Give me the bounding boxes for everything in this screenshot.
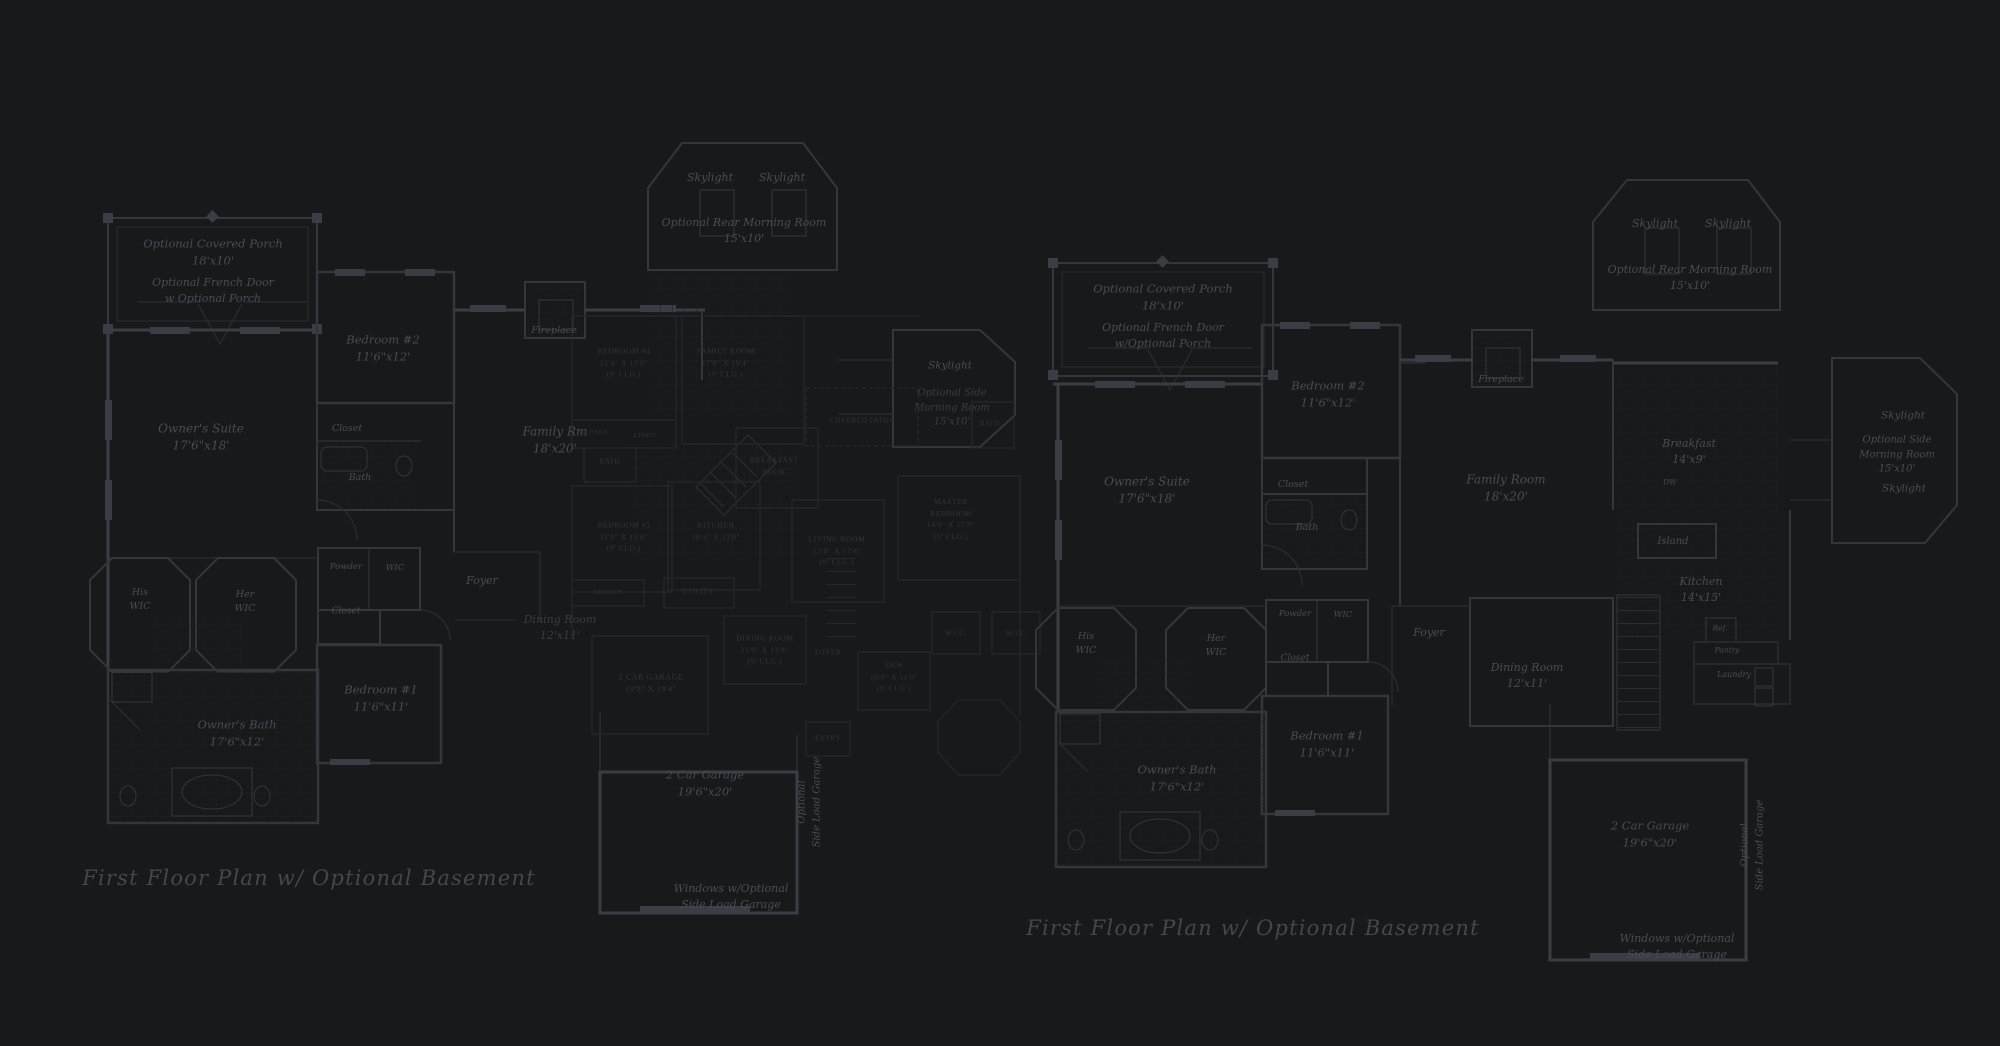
kitchen-r-label: Kitchen14'x15'	[1680, 574, 1723, 606]
u-wic2-label: W.I.C.	[1006, 629, 1028, 640]
closet-bedroom2-r-label: Closet	[1278, 478, 1308, 492]
skylight-rear-r1-label: Skylight	[1632, 216, 1678, 232]
powder-r-label: Powder	[1279, 608, 1311, 620]
u-bath2-label: BATH	[980, 419, 1001, 430]
u-dining-room-label: DINING ROOM11'0" X 13'8"(9' CLG.)	[736, 633, 794, 668]
u-wic1-label: W.I.C.	[945, 629, 967, 640]
foyer-label: Foyer	[466, 573, 498, 589]
u-linen-label: LINEN	[634, 431, 657, 441]
side-morning-room-r-label: Optional SideMorning Room15'x10'	[1859, 433, 1935, 477]
wic-r-label: WIC	[1334, 609, 1353, 621]
caption-r-label: First Floor Plan w/ Optional Basement	[1026, 913, 1480, 943]
garage-r-label: 2 Car Garage19'6"x20'	[1611, 817, 1689, 850]
side-load-garage-r-label: OptionalSide Load Garage	[1739, 800, 1768, 891]
u-family-room-label: FAMILY ROOM17'8" X 19'4"(9' CLG.)	[697, 346, 755, 381]
opt-covered-porch-r-label: Optional Covered Porch18'x10'	[1093, 280, 1233, 313]
island-r-label: Island	[1657, 535, 1688, 550]
opt-french-door-label: Optional French Doorw Optional Porch	[152, 275, 274, 307]
opt-french-door-r-label: Optional French Doorw/Optional Porch	[1102, 320, 1224, 352]
dw-r-label: DW	[1663, 478, 1677, 489]
owners-suite-label: Owner's Suite17'6"x18'	[158, 421, 244, 456]
u-breakfast-nook-label: BREAKFASTNOOK	[750, 454, 799, 477]
dining-room-label: Dining Room12'x11'	[524, 612, 597, 644]
caption-label: First Floor Plan w/ Optional Basement	[82, 863, 536, 893]
opt-covered-porch-label: Optional Covered Porch18'x10'	[143, 235, 283, 268]
u-closet1-label: CLOSET	[580, 428, 608, 438]
skylight-side-r2-label: Skylight	[1882, 481, 1926, 496]
u-bath1-label: BATH	[600, 457, 621, 468]
breakfast-r-label: Breakfast14'x9'	[1662, 436, 1716, 468]
skylight-side-r1-label: Skylight	[1881, 408, 1925, 423]
family-room-r-label: Family Room18'x20'	[1466, 472, 1545, 507]
u-bedroom4-label: BEDROOM #412'4" X 13'0"(9' CLG.)	[598, 346, 651, 381]
bedroom1-r-label: Bedroom #111'6"x11'	[1290, 727, 1363, 760]
u-master-bedroom-label: MASTERBEDROOM14'0" X 17'8"(9' CLG.)	[927, 496, 975, 543]
his-wic-label: HisWIC	[130, 586, 151, 614]
bedroom2-r-label: Bedroom #211'6"x12'	[1291, 377, 1364, 410]
family-rm-label: Family Rm18'x20'	[523, 424, 588, 459]
side-load-garage-label: OptionalSide Load Garage	[796, 757, 825, 848]
foyer-r-label: Foyer	[1413, 625, 1445, 641]
u-closet2-label: CLOSET	[594, 588, 622, 598]
side-morning-room-label: Optional SideMorning Room15'x10'	[914, 386, 990, 430]
skylight-rear-r2-label: Skylight	[1705, 216, 1751, 232]
powder-label: Powder	[330, 561, 362, 573]
bath-label: Bath	[349, 471, 372, 485]
u-kitchen-label: KITCHEN10'4" X 13'0"	[692, 519, 740, 542]
u-garage-label: 2 CAR GARAGE19'8" X 19'4"	[619, 672, 684, 697]
wic-label: WIC	[386, 562, 405, 574]
u-utility-label: UTILITY	[682, 587, 714, 598]
his-wic-r-label: HisWIC	[1076, 630, 1097, 658]
fireplace-r-label: Fireplace	[1478, 373, 1524, 387]
skylight-rear-2-label: Skylight	[759, 170, 805, 186]
owners-bath-label: Owner's Bath17'6"x12'	[197, 716, 276, 749]
u-living-room-label: LIVING ROOM13'0" X 17'8"(9' CLG.)	[809, 534, 866, 569]
owners-bath-r-label: Owner's Bath17'6"x12'	[1137, 761, 1216, 794]
her-wic-label: HerWIC	[235, 588, 256, 616]
closet2-r-label: Closet	[1281, 652, 1310, 665]
fireplace-label: Fireplace	[531, 324, 577, 338]
closet-bedroom2-label: Closet	[332, 422, 362, 436]
u-foyer-label: FOYER	[815, 648, 841, 659]
u-den-label: DEN10'0" X 11'0"(9' CLG.)	[870, 660, 918, 695]
rear-morning-room-label: Optional Rear Morning Room15'x10'	[662, 215, 827, 247]
ref-r-label: Ref.	[1713, 624, 1728, 635]
u-bedroom5-label: BEDROOM #511'0" X 13'0"(9' CLG.)	[598, 520, 651, 555]
u-entry-label: ENTRY	[815, 734, 841, 745]
rear-morning-room-r-label: Optional Rear Morning Room15'x10'	[1608, 262, 1773, 294]
pantry-r-label: Pantry	[1715, 646, 1740, 657]
u-covered-patio-label: COVERED PATIO	[830, 416, 892, 427]
bedroom2-label: Bedroom #211'6"x12'	[346, 331, 419, 364]
closet2-label: Closet	[332, 605, 361, 618]
garage-label: 2 Car Garage19'6"x20'	[666, 766, 744, 799]
her-wic-r-label: HerWIC	[1206, 632, 1227, 660]
windows-note-r-label: Windows w/OptionalSide Load Garage	[1620, 931, 1735, 963]
owners-suite-r-label: Owner's Suite17'6"x18'	[1104, 474, 1190, 509]
laundry-r-label: Laundry	[1717, 669, 1751, 681]
skylight-side-label: Skylight	[928, 358, 972, 373]
bedroom1-label: Bedroom #111'6"x11'	[344, 681, 417, 714]
dining-room-r-label: Dining Room12'x11'	[1491, 660, 1564, 692]
windows-note-label: Windows w/OptionalSide Load Garage	[674, 881, 789, 913]
skylight-rear-1-label: Skylight	[687, 170, 733, 186]
bath-r-label: Bath	[1296, 521, 1319, 535]
label-layer: Optional Covered Porch18'x10'Optional Fr…	[0, 0, 2000, 1046]
blueprint-canvas: Optional Covered Porch18'x10'Optional Fr…	[0, 0, 2000, 1046]
